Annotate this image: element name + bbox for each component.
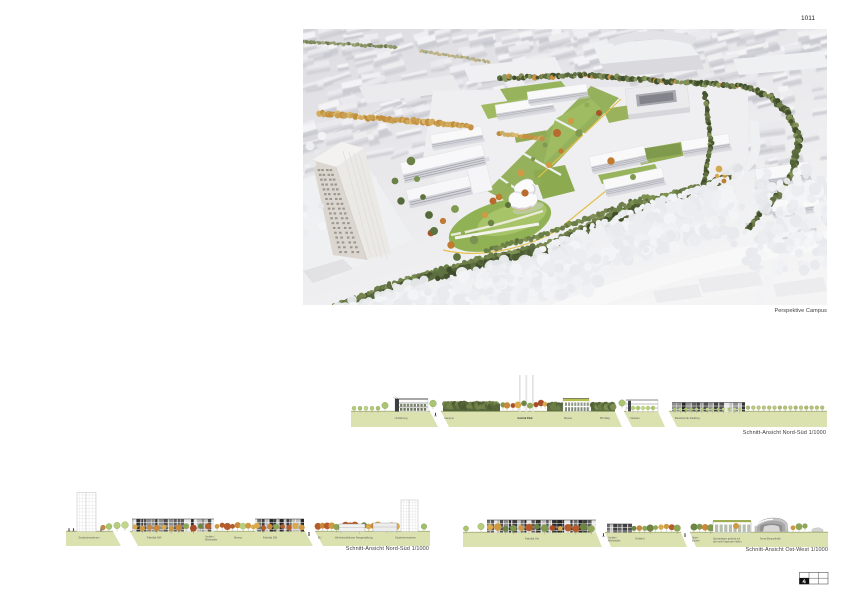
svg-text:Bestehende Siedlung: Bestehende Siedlung xyxy=(675,416,700,420)
svg-text:Campus: Campus xyxy=(444,416,454,420)
svg-text:Studentenwohnen: Studentenwohnen xyxy=(395,536,416,540)
svg-text:Wohnhochhäuser Neugestaltung: Wohnhochhäuser Neugestaltung xyxy=(335,536,373,540)
svg-text:Central Park: Central Park xyxy=(517,416,533,420)
svg-text:Umfahrung: Umfahrung xyxy=(395,416,408,420)
svg-text:Fakultät NW: Fakultät NW xyxy=(147,536,162,540)
svg-text:BU-Weg: BU-Weg xyxy=(600,416,610,420)
svg-text:Fakultät SW: Fakultät SW xyxy=(263,536,278,540)
svg-text:den tiefer liegenden Hallen: den tiefer liegenden Hallen xyxy=(713,540,742,543)
svg-text:BU: BU xyxy=(318,537,322,540)
svg-text:Studentenwohnen: Studentenwohnen xyxy=(79,536,100,540)
svg-text:Einfahrt: Einfahrt xyxy=(636,537,645,541)
svg-text:Werkstraße: Werkstraße xyxy=(608,539,621,542)
svg-text:Mensa: Mensa xyxy=(564,416,572,420)
svg-text:flächen: flächen xyxy=(692,539,700,542)
svg-text:Werkstraße: Werkstraße xyxy=(205,538,218,541)
svg-text:Arena Eissporthalle: Arena Eissporthalle xyxy=(760,538,781,541)
svg-text:Mensa: Mensa xyxy=(234,536,242,540)
svg-text:Neubau: Neubau xyxy=(630,416,640,420)
svg-text:Fakultät Ost: Fakultät Ost xyxy=(525,537,539,541)
